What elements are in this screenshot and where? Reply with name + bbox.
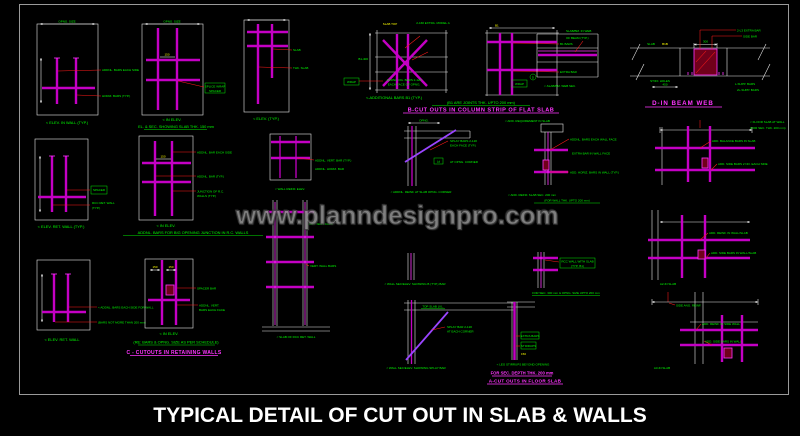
p16-label2: (BARS NOT MORE THAN 200 mm) — [98, 321, 146, 325]
p2-caption-small: < IN ELEV. — [163, 117, 182, 122]
p17-caption-small: < IN ELEV. — [160, 331, 179, 336]
p17-label2: ADDNL. VERT. — [199, 304, 219, 308]
p17-label3: BARS EACH FACE — [199, 308, 225, 312]
misc-right1: < FLOOR SLAB AT WALL — [750, 120, 785, 124]
p7-label3: 2L-SUPP. BARS — [737, 88, 759, 92]
p17-label1: SPACER BAR — [197, 287, 217, 291]
p7-dim: 300 — [703, 40, 708, 44]
p7-leader2: SIDE BAR — [743, 35, 758, 39]
p1-dim-top: OPNG. SIZE — [58, 20, 75, 24]
p12-dim-top: OPNG. — [419, 119, 429, 123]
p4-note-top: 2-16# EXTRA. MODEL A — [416, 21, 449, 25]
panel-wall-reinf-elev: ADDNL. VERT. BAR (TYP.) ADDNL. HORIZ. BA… — [270, 134, 351, 191]
p1-label2: HORIZ. BARS (TYP.) — [102, 94, 130, 98]
p16-caption: < ELEV. RET. WALL — [44, 337, 80, 342]
p4-section-caption: B-CUT OUTS IN COLUMN STRIP OF FLAT SLAB — [408, 108, 555, 114]
p9-label2: ADDNL. BAR (TYP.) — [197, 175, 224, 179]
p8-caption: < ELEV. RET. WALL (TYP.) — [38, 224, 85, 229]
misc-annotations: < FLOOR SLAB AT WALL (FOR SEC. THK. 200 … — [505, 119, 785, 130]
p8-box: SPACER — [93, 188, 106, 192]
p4-label-left: B1-400 — [358, 57, 368, 61]
p2-note: EL. & SEC. SHOWING SLAB THK. 150 mm — [138, 124, 214, 129]
p13-caption-small: < ADD. REINF. SLAB SEC. 200 mm — [508, 193, 556, 197]
p9-label3: JUNCTION OF R.C. — [197, 190, 224, 194]
p9-label4: WALLS (TYP.) — [197, 194, 216, 198]
p17-note: (RE: BARS & OPNG. SIZE AS PER SCHEDULE) — [133, 340, 219, 345]
p4-box: WRAP — [347, 80, 356, 84]
p1-label1: ADDNL. BARS EACH SIDE — [102, 68, 139, 72]
p13-label3: ADD. HORIZ. BARS IN WALL (TYP.) — [570, 171, 619, 175]
p7-label2: L-SUPP. BARS — [735, 82, 755, 86]
p4-note-mid2: EACH FACE OF OPNG. — [388, 83, 421, 87]
p12-note1: SPLAY BARS 2-12# — [450, 139, 477, 143]
panel-wall-elev-1: OPNG. SIZE ADDNL. BARS EACH SIDE HORIZ. … — [37, 20, 139, 126]
p2-dim-top: OPNG. SIZE — [163, 20, 180, 24]
p16-label1: < ADDNL. BARS EACH SIDE FOR WALL — [98, 306, 154, 310]
p11-caption: < SLAB OF RCC RET. WALL — [277, 335, 316, 339]
p14-label2: ADD. SIDE BARS 2 NO. EACH SIDE — [718, 162, 768, 166]
p2-box2: SPACER — [209, 89, 222, 93]
p18b-caption: < WALL SEC/ELEV. SHOWING SPLAY BAR — [386, 366, 446, 370]
p20-caption: A3-IN SLAB — [654, 366, 670, 370]
p13-label1: ADDNL. BARS EACH WALL FACE — [570, 138, 617, 142]
panel-wall-sec-1: ADDNL. BARS EACH WALL FACE EXTRA BAR IN … — [508, 124, 619, 203]
p12-note2: EACH FACE (TYP.) — [450, 144, 476, 148]
p19-box2: STIRRUPS — [521, 344, 536, 348]
panel-corner-splay: OPNG. SPLAY BARS 2-12# EACH FACE (TYP.) … — [391, 119, 479, 195]
panel-beam-side-view: SLAB/BM. IN WEB OF BEAM (TYP.) D <-SLAB/… — [530, 29, 598, 88]
sheet-title: TYPICAL DETAIL OF CUT OUT IN SLAB & WALL… — [0, 404, 800, 428]
p9-note: ADDNL. BARS FOR BIG OPENING JUNCTION IN … — [138, 230, 249, 235]
p6-label2: OF BEAM (TYP.) — [566, 36, 589, 40]
p15-caption: A2-IN SLAB — [660, 282, 676, 286]
p12-caption: < ADDNL. REINF. AT SLAB OPNG. CORNER — [391, 190, 453, 194]
misc-right2: (FOR SEC. THK. 200 mm) — [750, 126, 785, 130]
panel-cross-junction: SIDE ANG. REINF. ADD. REINF. IN SIDE WAL… — [652, 292, 758, 370]
p18b-label1: TOP SLAB LVL. — [422, 305, 444, 309]
p15-label2: ADD. SIDE BARS IN WALL/SLAB — [711, 251, 756, 255]
p10-label2: ADDNL. HORIZ. BAR — [315, 167, 345, 171]
p5-label2: EXTRA BAR — [560, 70, 578, 74]
p7-leader1: 2-L3 EXTRA BAR — [737, 29, 762, 33]
p14-label1: ADD. BALANCE BARS IN SLAB — [712, 139, 755, 143]
p19-dim1: 150 — [521, 352, 526, 356]
p20-label-top: SIDE ANG. REINF. — [676, 304, 702, 308]
panel-ret-wall-elev-2: < ADDNL. BARS EACH SIDE FOR WALL (BARS N… — [37, 260, 154, 342]
panel-beam-web: SLAB B1B 300 2-L3 EXTRA BAR SIDE BAR STI… — [630, 29, 770, 108]
p12-note3: AT OPNG. CORNER — [450, 160, 479, 164]
panel-wall-sec-small: < WALL SEC/ELEV. SHOWING B (TYP.) BAR — [384, 253, 446, 286]
p13b-note: FOR SEC. 300 mm & OPNG. SIZE UPTO 200 mm — [532, 291, 600, 295]
p6-label1: SLAB/BM. IN WEB — [566, 29, 591, 33]
p9-caption-small: < IN ELEV. — [157, 223, 176, 228]
p12-box: Ld — [437, 160, 441, 164]
p2-dim1: 150 — [164, 53, 169, 57]
p19-box1: EXTRA BARS — [521, 334, 540, 338]
p19-note: FOR SEC. DEPTH THK. 200 mm — [491, 371, 554, 376]
p17-dim1: 150 — [152, 265, 157, 269]
panel-wall-elev-2: 150 OPNG. SIZE SPLICE WRAP SPACER < IN E… — [138, 20, 225, 130]
watermark-text: www.planndesignpro.com — [236, 200, 566, 231]
p7-dim2: 450 — [662, 83, 667, 87]
p7-dim-yellow: B1B — [662, 42, 668, 46]
cad-sheet: OPNG. SIZE ADDNL. BARS EACH SIDE HORIZ. … — [0, 0, 800, 436]
panel-ret-wall-elev: SPACER RCC RET. WALL (TYP.) < ELEV. RET.… — [35, 139, 115, 229]
p18a-caption: < WALL SEC/ELEV. SHOWING B (TYP.) BAR — [384, 282, 446, 286]
p19-section-caption: A-CUT OUTS IN FLOOR SLAB — [489, 379, 562, 384]
p3-label2: THK. SLAB — [293, 66, 308, 70]
p10-caption: < WALL REINF. ELEV. — [275, 187, 305, 191]
p11-label2: VERT. WALL BARS — [310, 264, 336, 268]
panel-floor-slab-cutout: EXTRA BARS STIRRUPS 150 < LEG STIRRUPS B… — [487, 302, 563, 384]
p19-caption-small: < LEG STIRRUPS BEYOND OPENING — [497, 363, 550, 367]
p4-caption: <-ADDITIONAL BARS B1 (TYP.) — [366, 95, 423, 100]
p4-note-green: (B1 ARE JOINTS THK. UPTO 200 mm) — [447, 100, 516, 105]
p17-section-caption: C - CUTOUTS IN RETAINING WALLS — [127, 350, 222, 356]
misc-top1: < ADD. REQUIREMENT IN SLAB — [505, 119, 550, 123]
p20-label2: ADD. SIDE BARS IN WALL — [705, 340, 742, 344]
p1-caption: < ELEV. IN WALL (TYP.) — [46, 120, 89, 125]
p20-label1: ADD. REINF. IN SIDE WALL — [702, 322, 740, 326]
panel-wall-corner-splay: TOP SLAB LVL. SPLAY BAR 2-12# AT EACH CO… — [386, 300, 515, 370]
panel-flat-slab-elev: SLAB TOP 2-16# EXTRA. MODEL A B1-400 WRA… — [344, 21, 559, 114]
panel-wall-sec-2: RCC WALL WITH SLAB (TYP. B1) FOR SEC. 30… — [532, 252, 600, 296]
p7-section-caption: D-IN BEAM WEB — [652, 100, 714, 107]
p9-dim1: 150 — [160, 155, 165, 159]
panel-junction-grid-2: ADD. REINF. IN WALL/SLAB ADD. SIDE BARS … — [648, 210, 756, 286]
p5-yellow1: B1 — [495, 24, 499, 28]
p4-note-mid1: ADDNL. DG. BARS 2-12# — [387, 78, 422, 82]
panel-wall-elev-3: SLAB THK. SLAB < ELEV. (TYP.) — [244, 20, 308, 121]
p17-dim2: 150 — [168, 265, 173, 269]
p6-caption: <-SLAB/BM. WEB SEC. — [544, 84, 576, 88]
p3-label1: SLAB — [293, 48, 301, 52]
p9-label1: ADDNL. BAR EACH SIDE — [197, 151, 232, 155]
p7-dim-green: SLAB — [647, 42, 655, 46]
p10-label1: ADDNL. VERT. BAR (TYP.) — [315, 159, 351, 163]
p4-yellow1: SLAB TOP — [383, 22, 398, 26]
p8-label2: (TYP.) — [92, 206, 100, 210]
p15-label1: ADD. REINF. IN WALL/SLAB — [709, 231, 748, 235]
p5-label1: B1 BARS — [560, 42, 573, 46]
p13-label2: EXTRA BAR IN WALL FACE — [572, 152, 610, 156]
p13b-box2: (TYP. B1) — [571, 264, 584, 268]
p8-label1: RCC RET. WALL — [92, 201, 115, 205]
p5-box: WRAP — [515, 82, 524, 86]
p6-circle-label: D — [532, 75, 535, 79]
p3-caption: < ELEV. (TYP.) — [253, 116, 280, 121]
p18b-note2: AT EACH CORNER — [447, 330, 474, 334]
p18b-note1: SPLAY BAR 2-12# — [447, 325, 472, 329]
